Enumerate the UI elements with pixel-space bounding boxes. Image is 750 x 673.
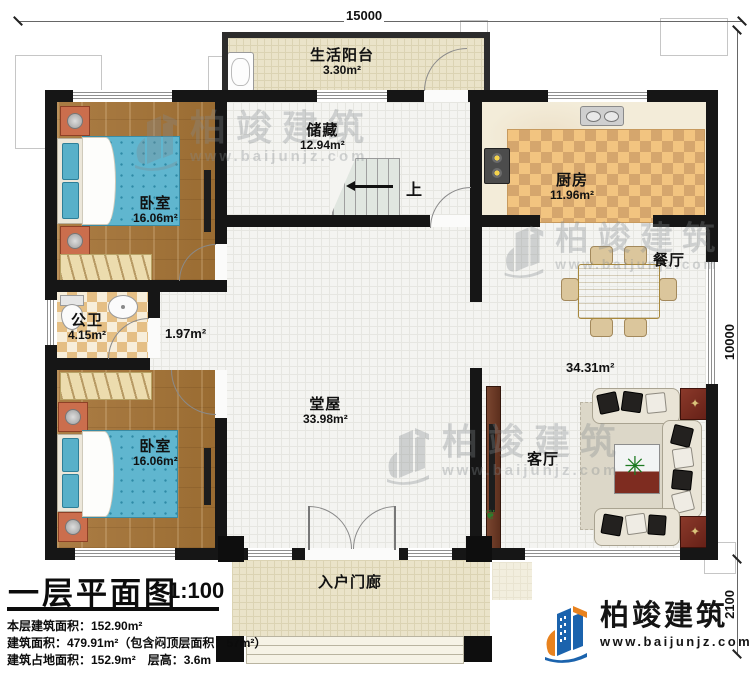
- door-leaf: [308, 506, 310, 550]
- porch-steps: [246, 636, 464, 664]
- nightstand: [58, 402, 88, 432]
- entry-door-opening: [305, 548, 399, 560]
- window: [706, 262, 718, 384]
- door-opening: [215, 370, 227, 418]
- stairs-up-label: 上: [406, 176, 422, 200]
- room-label-bathroom: 公卫 4.15m²: [68, 312, 106, 343]
- info-line-1: 本层建筑面积：152.90m²: [7, 617, 142, 634]
- wall-interior: [45, 358, 150, 370]
- nightstand: [60, 106, 90, 136]
- window: [317, 90, 387, 102]
- room-label-storage: 储藏 12.94m²: [300, 122, 345, 153]
- window: [548, 90, 647, 102]
- brand-company: 柏竣建筑: [600, 602, 750, 631]
- wardrobe: [60, 254, 152, 281]
- window: [75, 548, 175, 560]
- tv: [204, 448, 211, 505]
- dining-chair: [659, 278, 677, 301]
- wall-interior: [470, 90, 482, 227]
- exterior-ground: [492, 562, 532, 600]
- wall-interior: [45, 280, 227, 292]
- dining-chair: [624, 246, 647, 265]
- bed-pillow: [62, 438, 79, 472]
- column: [464, 636, 492, 662]
- bed-pillow: [62, 143, 79, 180]
- balcony-parapet: [222, 32, 228, 90]
- window: [73, 90, 172, 102]
- bed-pillow: [62, 182, 79, 219]
- room-label-balcony: 生活阳台 3.30m²: [310, 47, 374, 78]
- info-line-3: 建筑占地面积：152.9m² 层高：3.6m: [7, 651, 211, 668]
- washing-machine: [227, 52, 254, 92]
- kitchen-sink: [580, 106, 624, 126]
- dining-table: [578, 264, 660, 319]
- window: [525, 548, 680, 560]
- window: [248, 548, 292, 560]
- dim-line-right-upper: [737, 30, 738, 560]
- tv: [204, 170, 211, 232]
- info-line-2: 建筑面积：479.91m²（包含闷顶层面积：57m²）: [7, 634, 266, 651]
- window: [45, 300, 57, 345]
- dining-chair: [590, 318, 613, 337]
- kitchen-mat: [508, 130, 704, 222]
- dining-chair: [561, 278, 579, 301]
- wall-interior: [653, 215, 718, 227]
- balcony-parapet: [222, 32, 490, 38]
- balcony-parapet: [484, 32, 490, 90]
- bathroom-sink: [108, 295, 138, 319]
- brand-website: www.baijunjz.com: [600, 635, 750, 648]
- tv: [489, 424, 495, 512]
- stairs-arrow: [355, 185, 393, 188]
- room-label-bedroom-top: 卧室 16.06m²: [133, 195, 178, 226]
- sofa-cushion: [672, 447, 695, 470]
- sofa-cushion: [647, 514, 666, 535]
- room-label-porch: 入户门廊: [318, 574, 382, 591]
- wall-interior: [215, 90, 227, 244]
- wall-interior: [215, 418, 227, 548]
- plant-icon: ❦: [485, 508, 496, 521]
- wall-interior: [470, 227, 482, 302]
- wall-interior: [227, 215, 430, 227]
- dim-bracket: [660, 18, 728, 56]
- wall-interior: [470, 368, 482, 548]
- door-opening: [148, 318, 160, 358]
- room-label-bedroom-bottom: 卧室 16.06m²: [133, 438, 178, 469]
- door-opening: [424, 90, 468, 102]
- sofa-cushion: [671, 469, 693, 491]
- bed-sheet: [82, 431, 114, 517]
- wall-interior: [148, 292, 160, 318]
- plant-icon: ✳: [624, 453, 646, 479]
- dining-chair: [590, 246, 613, 265]
- column: [466, 536, 492, 562]
- brand-block: 柏竣建筑 www.baijunjz.com: [540, 602, 750, 664]
- plan-scale: 1:100: [168, 578, 224, 604]
- sofa-cushion: [625, 513, 648, 536]
- bed-pillow: [62, 474, 79, 508]
- door-opening: [215, 244, 227, 280]
- sofa-cushion: [645, 392, 667, 414]
- column: [218, 536, 244, 562]
- room-label-living: 客厅: [527, 451, 559, 468]
- hallway-area-label: 1.97m²: [165, 326, 206, 341]
- title-underline: [7, 607, 219, 611]
- floor-plan-canvas: ✳ ❦: [0, 0, 750, 673]
- stairs-arrow-head: [346, 181, 355, 191]
- bed-sheet: [82, 137, 116, 225]
- dim-label-top: 15000: [344, 8, 384, 23]
- wall-interior: [482, 215, 540, 227]
- dining-chair: [624, 318, 647, 337]
- room-label-dining: 餐厅: [653, 252, 685, 269]
- porch-floor: [232, 560, 490, 636]
- dim-label-right-upper: 10000: [722, 322, 737, 362]
- door-leaf: [394, 506, 396, 550]
- brand-logo-icon: [540, 602, 592, 664]
- room-label-kitchen: 厨房 11.96m²: [550, 172, 594, 203]
- nightstand: [60, 226, 90, 256]
- stove: [484, 148, 510, 184]
- room-label-hall: 堂屋 33.98m²: [303, 396, 348, 427]
- wardrobe: [60, 372, 152, 400]
- sofa-cushion: [600, 513, 623, 536]
- open-area-label: 34.31m²: [566, 360, 614, 375]
- sofa-cushion: [621, 391, 644, 414]
- sofa-cushion: [596, 391, 620, 415]
- window: [408, 548, 452, 560]
